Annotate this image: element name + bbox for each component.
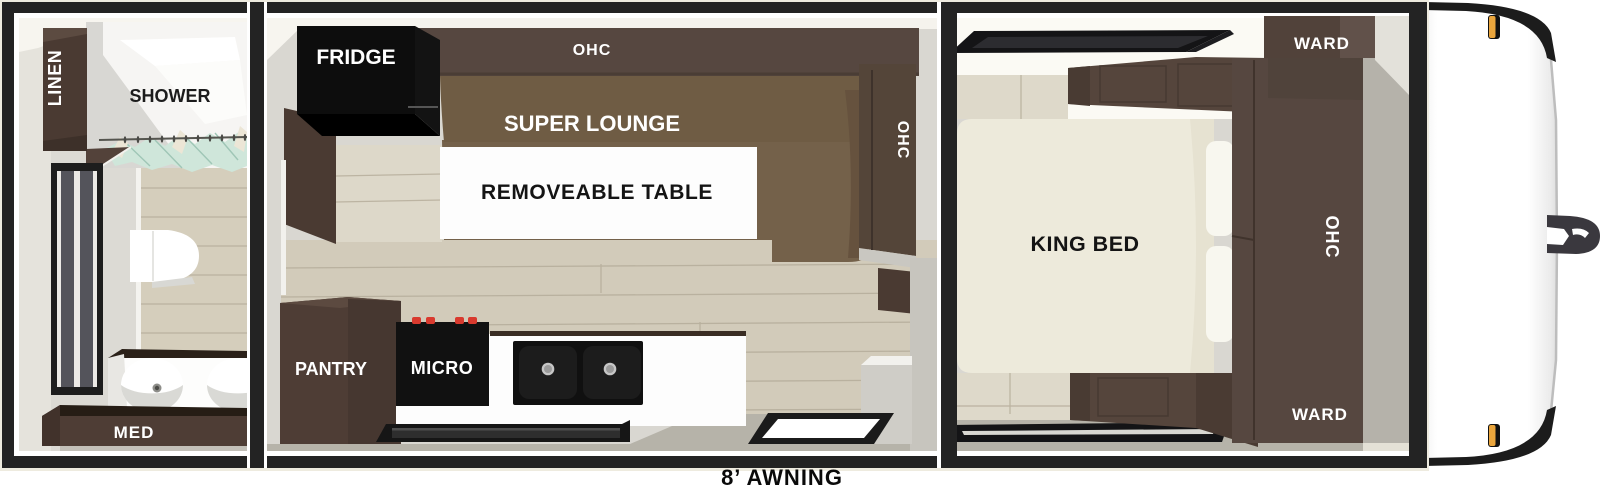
- svg-text:LINEN: LINEN: [45, 50, 65, 107]
- svg-text:FRIDGE: FRIDGE: [316, 46, 395, 69]
- svg-text:SHOWER: SHOWER: [130, 86, 211, 106]
- svg-text:REMOVEABLE TABLE: REMOVEABLE TABLE: [481, 181, 713, 204]
- svg-text:WARD: WARD: [1294, 34, 1350, 53]
- svg-text:OHC: OHC: [573, 42, 612, 59]
- svg-text:OHC: OHC: [894, 121, 911, 160]
- svg-text:MED: MED: [114, 423, 155, 442]
- svg-text:KING BED: KING BED: [1030, 232, 1139, 256]
- svg-text:WARD: WARD: [1292, 405, 1348, 424]
- svg-text:OHC: OHC: [1322, 216, 1342, 259]
- svg-text:SUPER LOUNGE: SUPER LOUNGE: [504, 111, 680, 136]
- svg-text:8’ AWNING: 8’ AWNING: [721, 465, 843, 487]
- svg-text:MICRO: MICRO: [411, 358, 474, 378]
- svg-text:PANTRY: PANTRY: [295, 359, 367, 379]
